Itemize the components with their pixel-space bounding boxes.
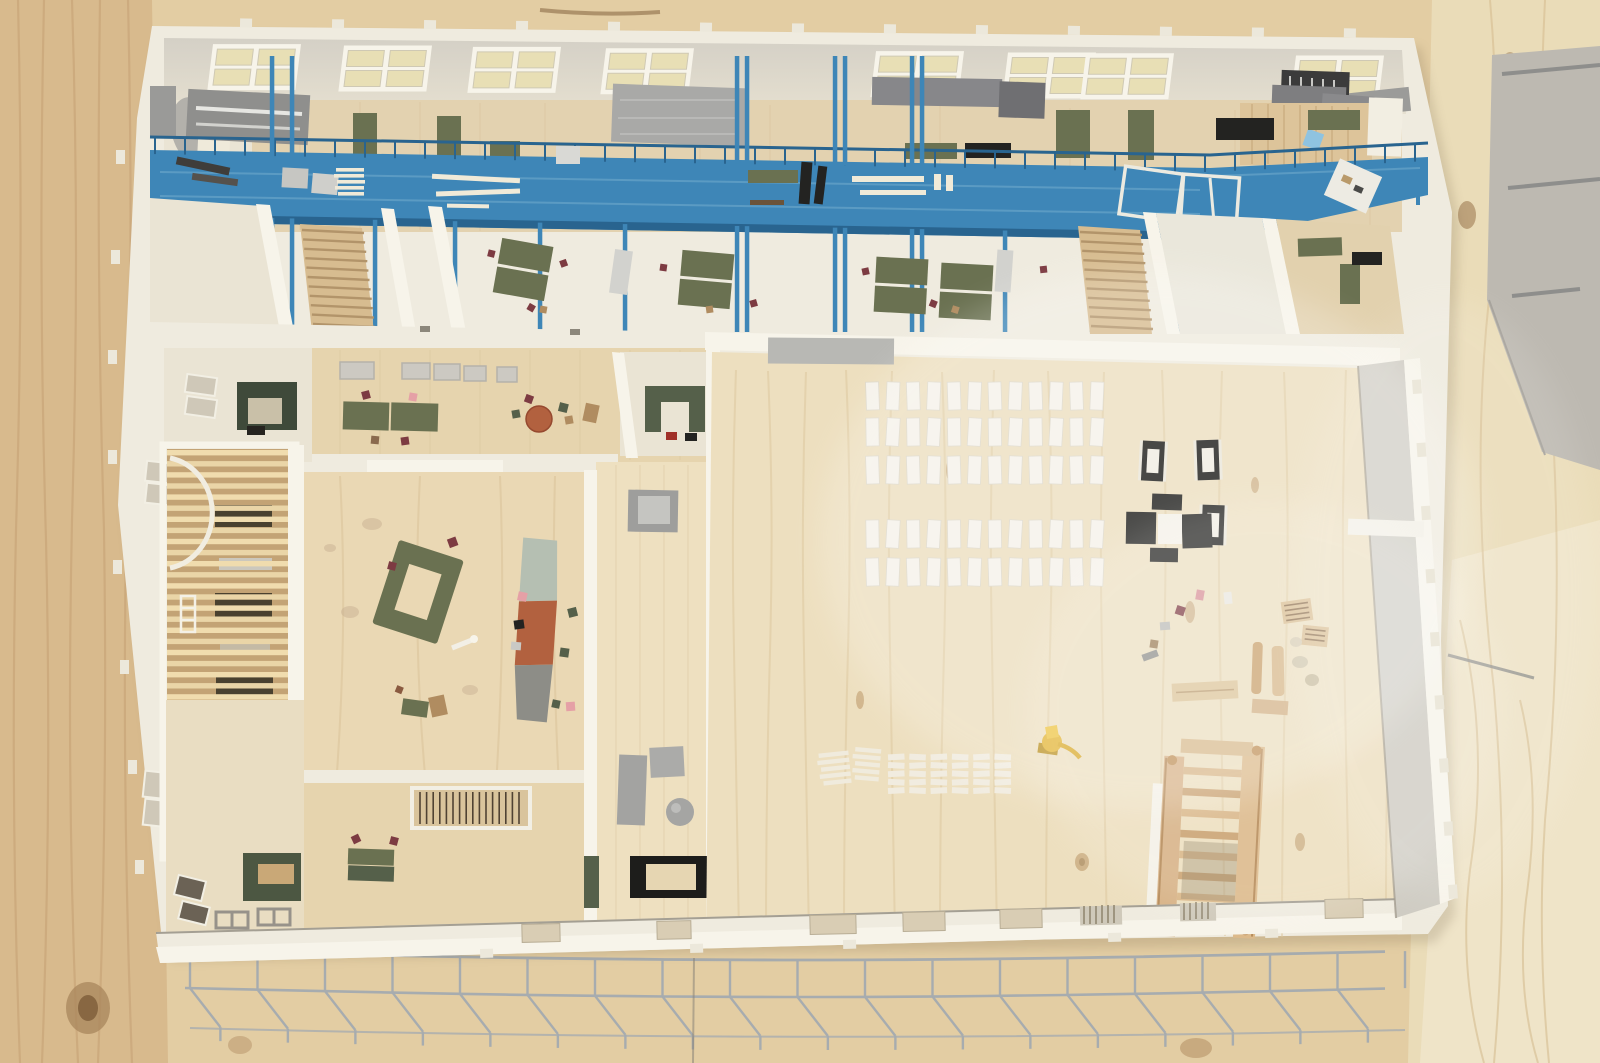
- skylight-group: [1080, 53, 1174, 99]
- joint-tab: [135, 860, 144, 874]
- small-plank: [909, 762, 926, 769]
- joint-tab: [1439, 758, 1449, 773]
- small-plank: [930, 754, 947, 761]
- joint-tab: [1160, 27, 1172, 36]
- small-plank: [888, 787, 905, 794]
- joint-tab: [1417, 442, 1427, 457]
- louver-slat: [167, 694, 292, 699]
- joint-tab: [1265, 929, 1278, 938]
- joint-tab: [1344, 28, 1356, 37]
- joint-tab: [424, 20, 436, 29]
- small-plank: [973, 787, 990, 794]
- louver-slat: [167, 494, 292, 499]
- joint-tab: [1426, 569, 1436, 584]
- lounge-top-wall: [367, 460, 503, 472]
- joint-tab: [976, 25, 988, 34]
- catwalk-tall-post: [735, 56, 740, 164]
- small-plank: [973, 779, 990, 786]
- stone-pedestal: [628, 490, 679, 533]
- louver-slat: [167, 583, 292, 588]
- joint-tab: [792, 23, 804, 32]
- small-plank: [888, 762, 905, 769]
- joint-tab: [240, 18, 252, 27]
- catwalk-tall-post: [833, 56, 838, 166]
- small-plank: [952, 779, 969, 786]
- joint-tab: [116, 150, 125, 164]
- small-plank: [930, 762, 947, 769]
- louver-slat: [167, 650, 292, 655]
- skylight-group: [338, 46, 432, 92]
- louver-slat: [167, 639, 292, 644]
- joint-tab: [1435, 695, 1445, 710]
- louver-slat: [167, 572, 292, 577]
- catwalk-tall-post: [910, 56, 915, 167]
- louver-slat: [167, 472, 292, 477]
- photo-architectural-model-topdown: [0, 0, 1600, 1063]
- joint-tab: [1444, 821, 1454, 836]
- louver-slat: [167, 450, 292, 455]
- dark-courtyard: [243, 853, 301, 901]
- catwalk-column: [735, 226, 740, 332]
- hanging-wire: [693, 958, 694, 1063]
- catwalk-column: [1298, 197, 1302, 205]
- joint-tab: [1448, 884, 1458, 899]
- louver-slat: [167, 539, 292, 544]
- small-plank: [888, 770, 905, 777]
- meeting-room-kitchen: [237, 382, 297, 435]
- joint-tab: [128, 760, 137, 774]
- joint-tab: [120, 660, 129, 674]
- louver-slat: [167, 661, 292, 666]
- joint-tab: [1421, 506, 1431, 521]
- louver-slat: [167, 683, 292, 688]
- joint-tab: [608, 22, 620, 31]
- joint-tab: [1068, 26, 1080, 35]
- catwalk-tall-post: [290, 56, 295, 156]
- small-plank: [909, 787, 926, 794]
- louver-slat: [167, 550, 292, 555]
- catwalk-column: [1416, 191, 1420, 205]
- skylight-group: [467, 47, 561, 93]
- louver-slat: [167, 483, 292, 488]
- small-office: [612, 352, 708, 458]
- skylight-group: [207, 44, 301, 90]
- joint-tab: [1252, 27, 1264, 36]
- joint-tab: [1412, 379, 1422, 394]
- joint-tab: [113, 560, 122, 574]
- joint-tab: [884, 24, 896, 33]
- entry-threshold: [768, 337, 894, 364]
- catwalk-tall-post: [920, 56, 925, 167]
- joint-tab: [480, 949, 493, 958]
- louver-slat: [167, 672, 292, 677]
- catwalk-column: [373, 220, 378, 332]
- joint-tab: [108, 350, 117, 364]
- office-wing: [143, 340, 730, 942]
- joint-tab: [843, 940, 856, 949]
- small-plank: [909, 779, 926, 786]
- catwalk-column: [843, 228, 848, 332]
- small-plank: [888, 779, 905, 786]
- small-plank: [952, 770, 969, 777]
- small-plank: [930, 770, 947, 777]
- small-plank: [888, 754, 905, 761]
- joint-tab: [108, 450, 117, 464]
- catwalk-tall-post: [270, 56, 275, 156]
- lounge: [304, 472, 584, 788]
- small-plank: [930, 787, 947, 794]
- louver-slat: [167, 528, 292, 533]
- catwalk-column: [833, 228, 838, 332]
- model-photo-canvas: [0, 0, 1600, 1063]
- joint-tab: [332, 19, 344, 28]
- joint-tab: [700, 23, 712, 32]
- catwalk-column: [745, 226, 750, 332]
- joint-tab: [111, 250, 120, 264]
- louver-slat: [167, 517, 292, 522]
- catwalk-tall-post: [745, 56, 750, 164]
- joint-tab: [1108, 933, 1121, 942]
- stair-balustrade: [412, 788, 530, 828]
- small-plank: [994, 787, 1011, 794]
- joint-tab: [1430, 632, 1440, 647]
- small-plank: [930, 779, 947, 786]
- louver-slat: [167, 506, 292, 511]
- small-plank: [909, 770, 926, 777]
- joint-tab: [690, 944, 703, 953]
- catwalk-tall-post: [843, 56, 848, 166]
- joint-tab: [516, 21, 528, 30]
- small-plank: [909, 754, 926, 761]
- small-plank: [952, 787, 969, 794]
